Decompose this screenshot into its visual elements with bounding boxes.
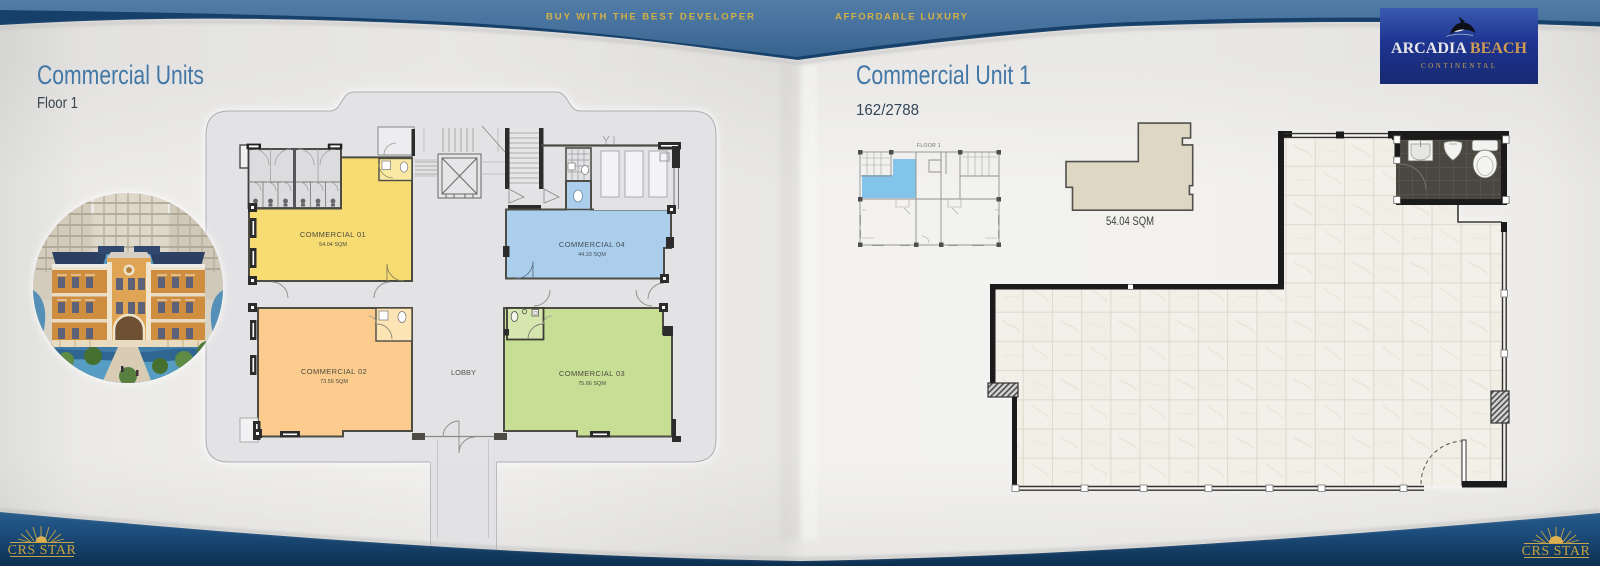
svg-text:FLOOR 1: FLOOR 1: [917, 143, 941, 149]
svg-text:CRS STAR: CRS STAR: [1522, 544, 1591, 559]
svg-text:LOBBY: LOBBY: [451, 368, 476, 377]
svg-text:COMMERCIAL 03: COMMERCIAL 03: [559, 369, 625, 378]
svg-text:Commercial Units: Commercial Units: [37, 60, 204, 90]
svg-text:CONTINENTAL: CONTINENTAL: [1421, 62, 1497, 70]
svg-text:54.04 SQM: 54.04 SQM: [319, 242, 347, 248]
svg-text:Commercial Unit 1: Commercial Unit 1: [856, 60, 1031, 90]
svg-text:COMMERCIAL 04: COMMERCIAL 04: [559, 240, 625, 249]
svg-text:BUY WITH THE BEST DEVELOPER: BUY WITH THE BEST DEVELOPER: [546, 12, 754, 23]
svg-text:COMMERCIAL 02: COMMERCIAL 02: [301, 367, 367, 376]
svg-text:COMMERCIAL 01: COMMERCIAL 01: [300, 230, 366, 239]
svg-text:ARCADIA BEACH: ARCADIA BEACH: [1391, 40, 1527, 57]
svg-text:Floor 1: Floor 1: [37, 95, 78, 112]
svg-text:73.59 SQM: 73.59 SQM: [320, 379, 348, 385]
svg-text:AFFORDABLE LUXURY: AFFORDABLE LUXURY: [835, 12, 968, 23]
svg-text:162/2788: 162/2788: [856, 102, 919, 119]
svg-text:54.04 SQM: 54.04 SQM: [1106, 216, 1154, 228]
svg-text:75.66 SQM: 75.66 SQM: [578, 381, 606, 387]
svg-text:CRS STAR: CRS STAR: [8, 543, 77, 558]
svg-text:44.33 SQM: 44.33 SQM: [578, 252, 606, 258]
